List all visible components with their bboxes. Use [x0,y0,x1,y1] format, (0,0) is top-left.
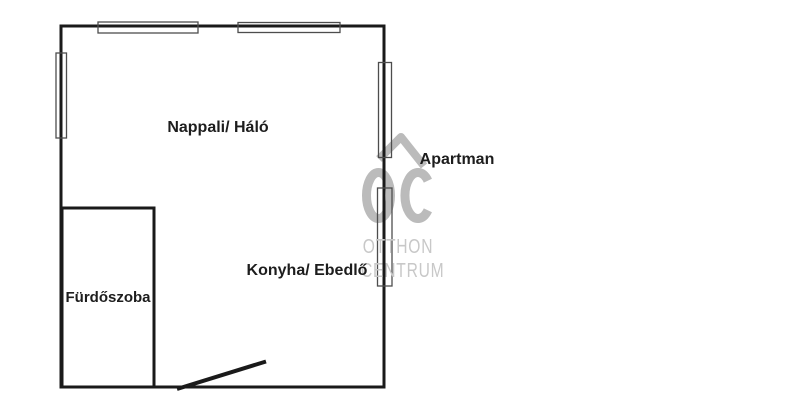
otthon-centrum-watermark [367,137,428,219]
floorplan-image: OTTHON CENTRUM Nappali/ Háló Konyha/ Ebe… [0,0,800,417]
floorplan-drawing [0,0,800,417]
oc-monogram-o [367,173,391,219]
room-label-furdoszoba: Fürdőszoba [61,290,155,307]
oc-monogram [367,173,428,219]
watermark-otthon: OTTHON [359,237,437,257]
room-label-nappali-halo: Nappali/ Háló [138,119,298,137]
room-label-konyha-ebedlo: Konyha/ Ebedlő [227,262,387,280]
unit-title-label: Apartman [407,151,507,169]
oc-monogram-c [405,173,428,219]
door-leaf [177,362,266,390]
windows [56,22,392,286]
